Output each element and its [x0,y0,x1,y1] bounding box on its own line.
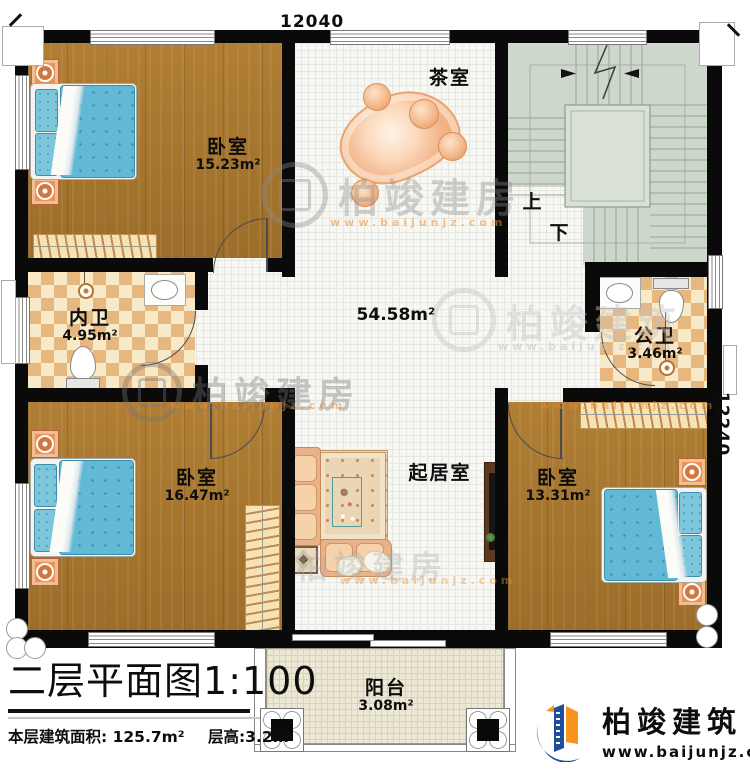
window [88,632,215,647]
nightstand [678,458,706,486]
wall-mid-left-b [268,258,295,272]
stairs-up: 上 [522,192,543,213]
pendant-light-icon [78,283,94,299]
title-underline-thin [8,717,260,719]
room-area: 13.31m² [525,489,590,505]
wall-stairs-left [495,43,508,277]
room-name: 卧室 [164,468,229,489]
axis-tick-icon [9,13,22,26]
drawing-title-text: 二层平面图 [8,659,203,703]
room-label-living: 起居室 [408,463,471,484]
pillow [35,89,58,132]
title-underline [8,709,250,713]
toilet-tank [653,278,689,289]
corner-ornament [696,604,718,626]
room-name: 起居室 [408,463,471,484]
tea-stool [351,179,379,207]
company-name: 柏竣建筑 [602,699,750,741]
room-label-tea-room: 茶室 [429,68,471,89]
company-logo-text: 柏竣建筑 www.baijunjz.com、 [602,699,750,762]
room-label-inner-bath: 内卫 4.95m² [62,308,117,345]
room-name: 卧室 [195,137,260,158]
sink-basin [151,280,178,300]
floor-height: 层高:3.2m [208,728,289,746]
wall-lower-right [563,388,722,402]
plant-icon [486,533,495,542]
room-label-bedroom-bl: 卧室 16.47m² [164,468,229,505]
company-website-row: www.baijunjz.com、 [602,741,750,762]
toilet [70,346,96,380]
door-leaf [560,404,562,458]
window [568,30,647,45]
window [15,297,30,364]
sofa-cushion [292,455,317,482]
company-logo-icon [530,698,594,762]
balcony-column [466,708,510,752]
drawing-scale: 1:100 [203,659,318,703]
nightstand [31,558,59,586]
room-name: 卧室 [525,468,590,489]
room-label-public-bath: 公卫 3.46m² [627,326,682,363]
window [330,30,450,45]
wardrobe [245,505,280,634]
pendant-stem [84,272,85,283]
pillow [34,464,57,507]
window [550,632,667,647]
wall-right [707,30,722,648]
hall-area: 54.58m² [357,305,436,325]
staircase [508,43,707,277]
wall-innerbath-right-b [195,365,208,388]
window-sill [1,280,16,364]
room-area: 16.47m² [164,489,229,505]
window-sill [723,345,737,395]
tea-stool [409,99,439,129]
sliding-door [292,634,374,641]
window [15,483,30,589]
tea-stool [363,83,391,111]
sofa-cushion [292,484,317,511]
nightstand [31,177,59,205]
window [15,75,30,170]
floor-plan: 卧室 15.23m² 茶室 上 下 内卫 4.95m² 54.58m² 公卫 3… [0,0,750,773]
room-area: 4.95m² [62,329,117,345]
stairs-up-label: 上 [522,192,543,213]
window [90,30,215,45]
wall-mid-right [585,262,722,277]
company-logo: 柏竣建筑 www.baijunjz.com、 [530,698,750,762]
corner-ornament [696,626,718,648]
company-website: www.baijunjz.com [602,743,750,761]
window [708,255,723,309]
door-leaf [210,404,212,458]
stairs-down-label: 下 [549,223,570,244]
room-name: 内卫 [62,308,117,329]
wardrobe [580,402,708,429]
sliding-door [370,640,446,647]
nightstand [31,430,59,458]
floor-area: 本层建筑面积: 125.7m² [8,728,185,746]
room-area: 3.46m² [627,347,682,363]
wall-mid-left-a [15,258,213,272]
drawing-title: 二层平面图1:100 [8,650,318,705]
room-area: 15.23m² [195,158,260,174]
dimension-top: 12040 [280,12,344,32]
room-label-balcony: 阳台 3.08m² [358,678,413,715]
wall-bedroom-tl-right [282,43,295,277]
pillow [679,492,702,534]
room-label-bedroom-tl: 卧室 15.23m² [195,137,260,174]
room-label-bedroom-br: 卧室 13.31m² [525,468,590,505]
sink-basin [606,283,633,303]
room-name: 茶室 [429,68,471,89]
axis-marker [2,26,44,66]
coffee-table [332,477,362,527]
wall-bedroom-bl-right [282,388,295,630]
stairs-down: 下 [549,223,570,244]
wall-innerbath-right-a [195,272,208,310]
wardrobe [33,234,157,261]
wall-bedroom-br-left [495,388,508,630]
floor-info: 本层建筑面积: 125.7m² 层高:3.2m [8,725,318,747]
sofa-cushion [292,513,317,540]
room-area: 3.08m² [358,699,413,715]
title-block: 二层平面图1:100 本层建筑面积: 125.7m² 层高:3.2m [8,650,318,747]
wall-publicbath-left [585,277,600,332]
wall-lower-left-a [15,388,210,402]
room-name: 公卫 [627,326,682,347]
dimension-right: 12240 [712,392,732,456]
tea-stool [438,132,467,161]
door-leaf [266,218,268,272]
room-name: 阳台 [358,678,413,699]
hall-area-label: 54.58m² [357,306,436,325]
